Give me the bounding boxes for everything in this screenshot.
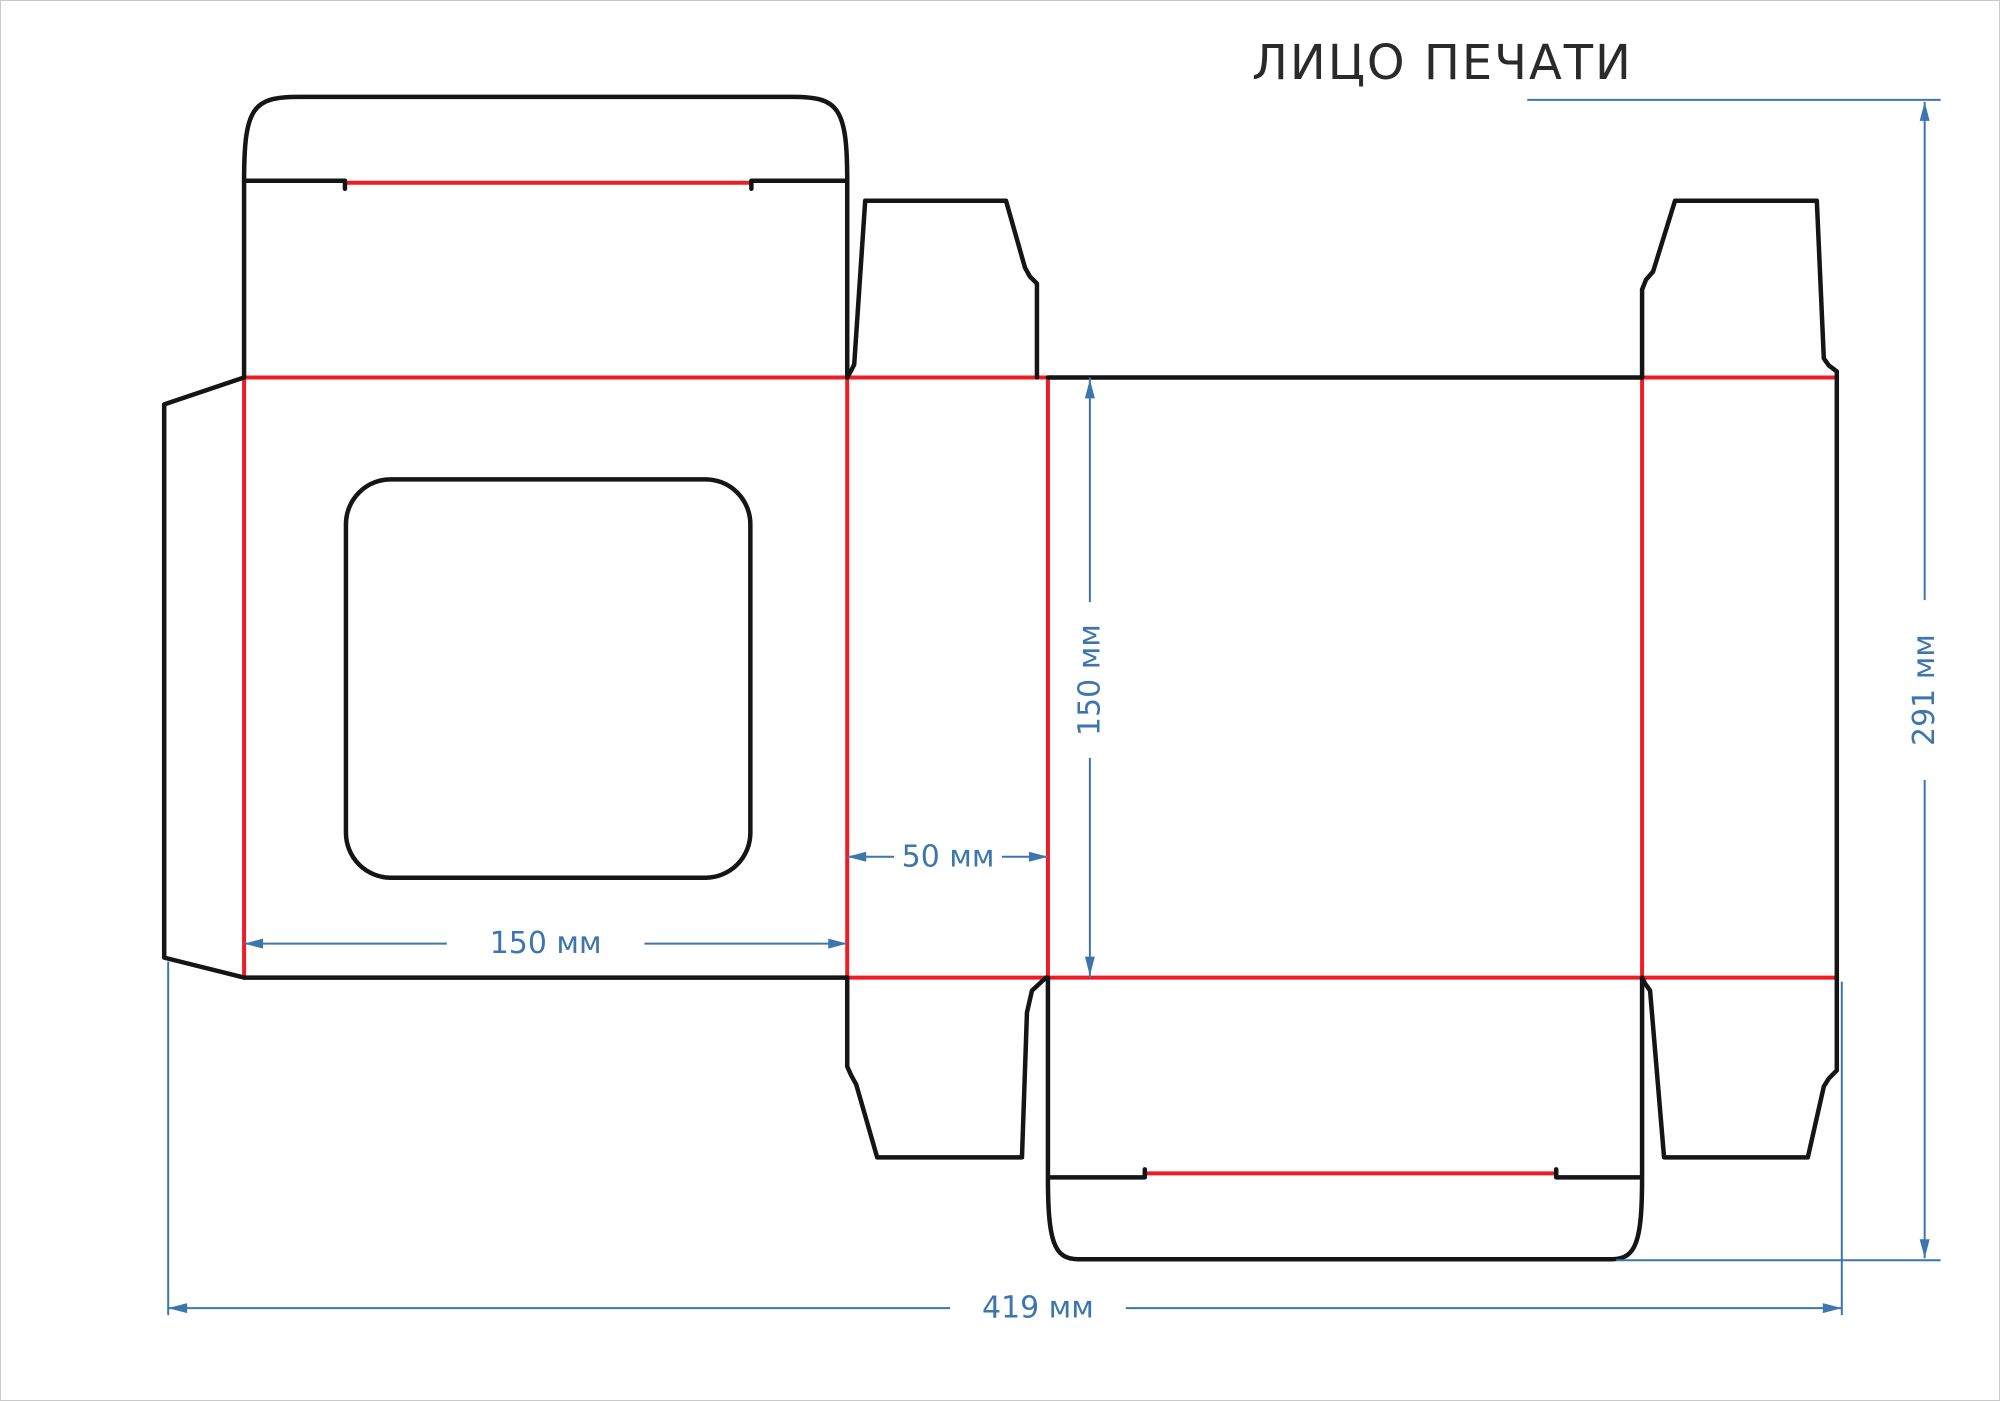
main-crease-lines: [244, 377, 1837, 977]
arrowhead-up-icon: [1920, 102, 1930, 121]
arrowhead-right-icon: [1823, 1303, 1842, 1313]
crease-lines: [244, 183, 1837, 1174]
bottom-dust-flap-left: [847, 978, 1046, 1158]
dim-label-total-height: 291 мм: [1907, 634, 1942, 746]
bottom-lid-outline: [1048, 978, 1642, 1260]
arrowhead-right-icon: [1029, 852, 1048, 862]
arrowhead-right-icon: [828, 939, 847, 949]
arrowhead-down-icon: [1920, 1239, 1930, 1258]
arrowhead-left-icon: [847, 852, 866, 862]
top-dust-flap-right: [1642, 201, 1837, 378]
dim-label-side-panel-width: 50 мм: [902, 839, 995, 874]
dim-label-total-width: 419 мм: [982, 1291, 1094, 1326]
dim-label-panel-height: 150 мм: [1072, 624, 1107, 736]
window-cutout: [346, 479, 750, 877]
drawing-title: ЛИЦО ПЕЧАТИ: [1252, 36, 1633, 91]
extension-lines: [168, 100, 1940, 1315]
glue-flap-outline: [164, 377, 244, 977]
dimension-lines: [168, 100, 1940, 1315]
dieline-drawing: ЛИЦО ПЕЧАТИ 150 мм 50 мм 150 мм 419 мм 2…: [1, 1, 1999, 1400]
dim-label-front-panel-width: 150 мм: [490, 926, 602, 961]
arrowhead-down-icon: [1085, 957, 1095, 976]
top-dust-flap-left: [847, 201, 1037, 378]
dieline-sheet: ЛИЦО ПЕЧАТИ 150 мм 50 мм 150 мм 419 мм 2…: [0, 0, 2000, 1401]
arrowhead-left-icon: [244, 939, 263, 949]
arrowhead-left-icon: [168, 1303, 187, 1313]
top-lid-outline: [244, 97, 847, 378]
cut-lines: [164, 97, 1837, 1259]
arrowhead-up-icon: [1085, 379, 1095, 398]
bottom-dust-flap-right: [1642, 978, 1837, 1158]
